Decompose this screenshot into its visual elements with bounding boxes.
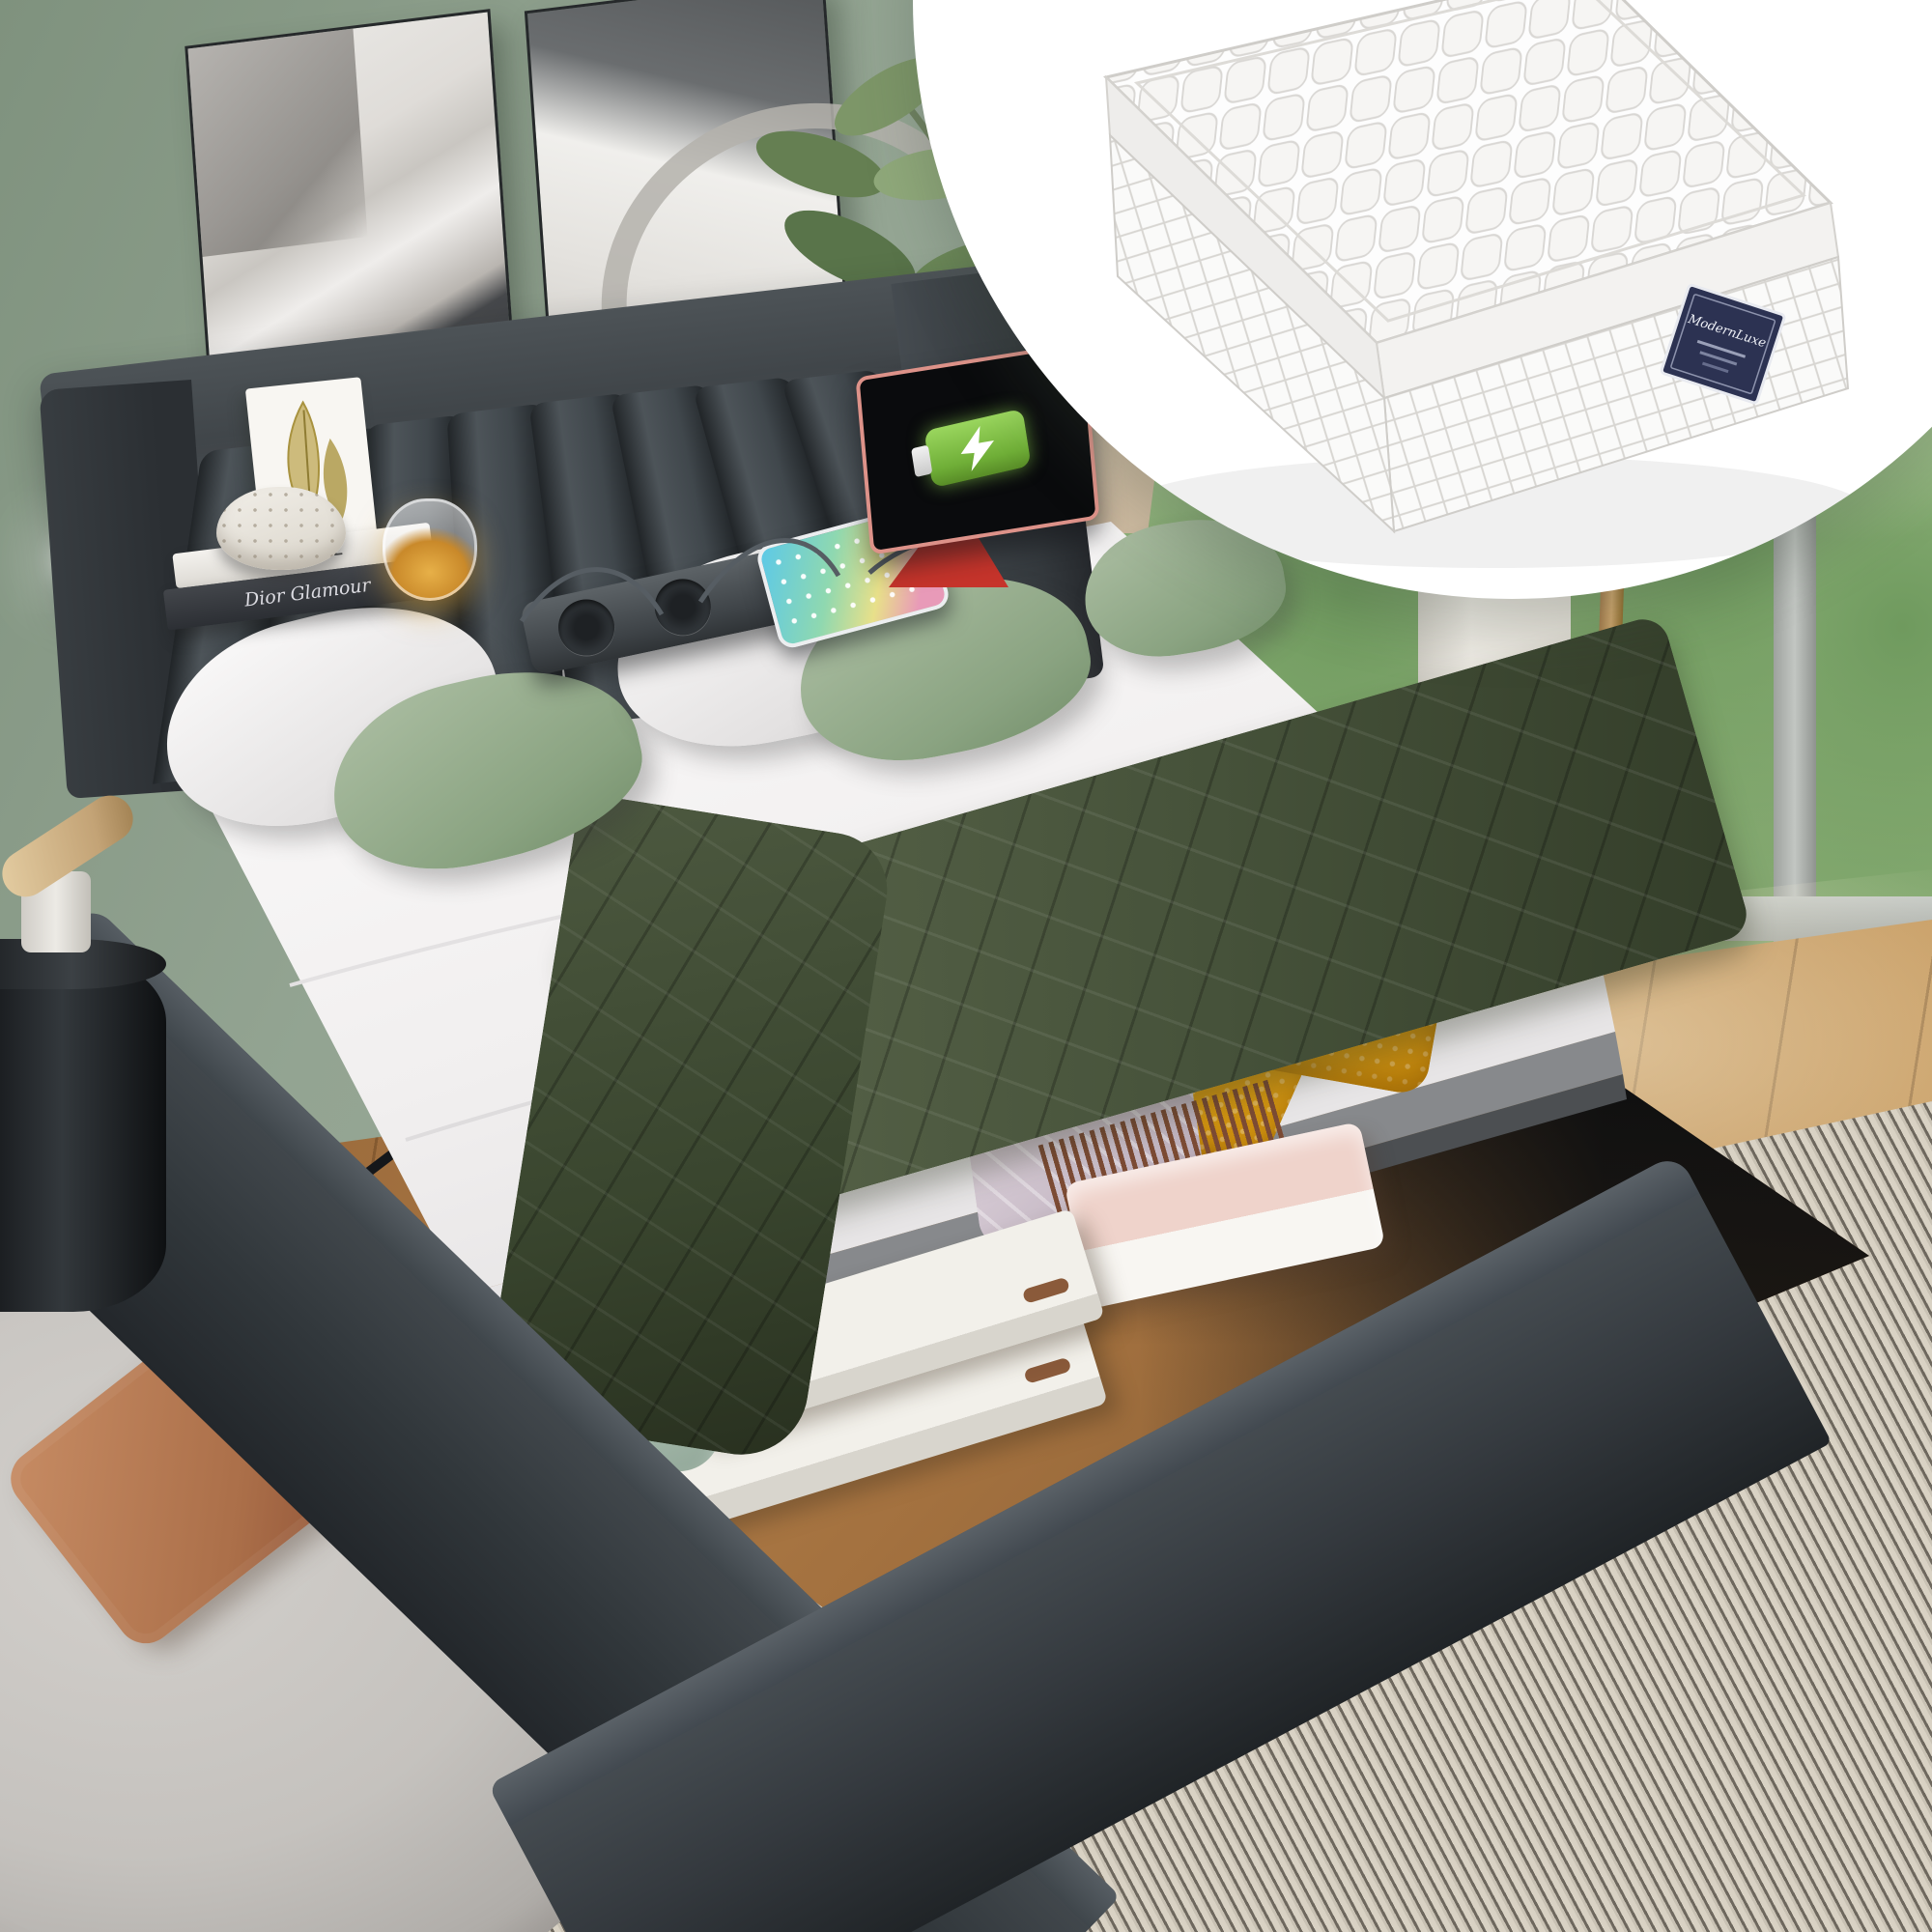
black-cylinder-nightstand (0, 954, 166, 1312)
speckled-ceramic-bowl (216, 487, 346, 570)
battery-charging-icon (923, 409, 1031, 489)
book-title: Dior Glamour (243, 575, 372, 611)
lightning-bolt-icon (923, 409, 1031, 489)
bedroom-product-photo: CHANEL Dior Glamour (0, 0, 1932, 1932)
